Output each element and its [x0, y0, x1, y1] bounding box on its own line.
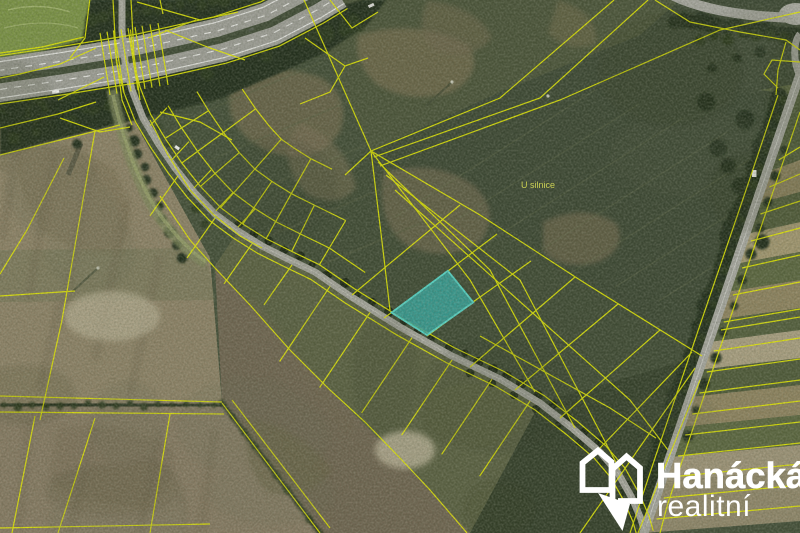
svg-text:realitní: realitní — [657, 490, 751, 523]
